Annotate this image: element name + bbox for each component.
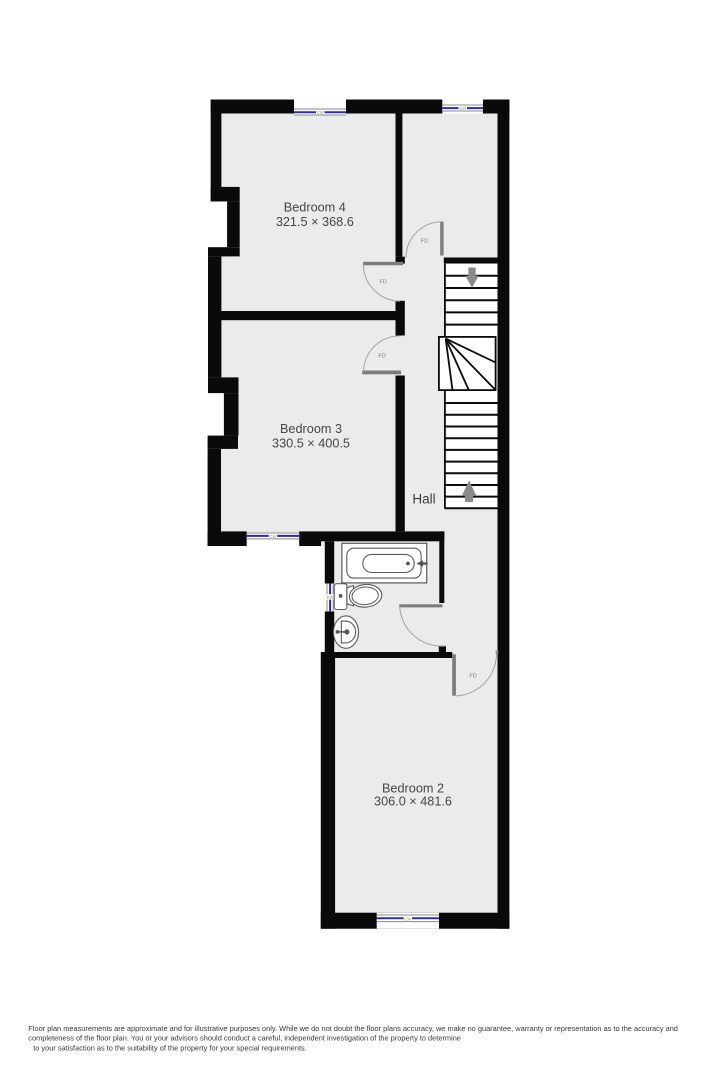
svg-text:CW: CW <box>459 106 466 111</box>
svg-text:to your satisfaction as to the: to your satisfaction as to the suitabili… <box>33 1043 307 1052</box>
svg-text:321.5 × 368.6: 321.5 × 368.6 <box>276 215 354 229</box>
svg-text:330.5 × 400.5: 330.5 × 400.5 <box>272 437 350 451</box>
svg-text:completeness of the floor plan: completeness of the floor plan. You or y… <box>28 1034 461 1043</box>
svg-text:Floor plan measurements are ap: Floor plan measurements are approximate … <box>28 1024 678 1033</box>
svg-text:EW: EW <box>327 595 334 600</box>
svg-text:CW: CW <box>269 534 276 539</box>
svg-text:FD: FD <box>379 280 386 286</box>
svg-text:CW: CW <box>404 916 411 921</box>
svg-text:Bedroom 3: Bedroom 3 <box>280 422 342 436</box>
svg-text:306.0 × 481.6: 306.0 × 481.6 <box>374 794 452 808</box>
svg-text:FD: FD <box>421 239 428 245</box>
svg-text:FD: FD <box>469 674 476 680</box>
svg-text:Hall: Hall <box>412 491 435 506</box>
svg-text:CW: CW <box>317 110 324 115</box>
svg-text:Bedroom 2: Bedroom 2 <box>382 781 444 795</box>
svg-text:FD: FD <box>378 354 385 360</box>
svg-text:Bedroom 4: Bedroom 4 <box>284 201 346 215</box>
